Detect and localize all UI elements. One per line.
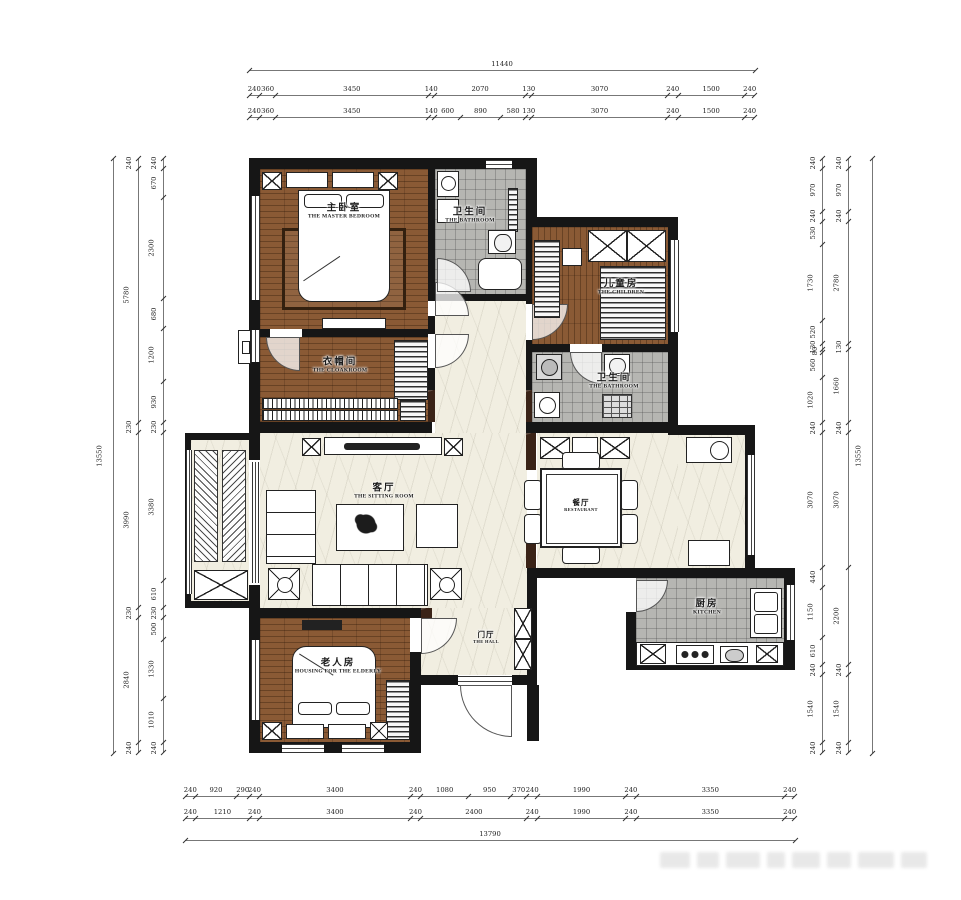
dim-value: 2200 <box>833 607 840 624</box>
plant-rack <box>222 450 246 562</box>
dim-segment: 230 <box>128 422 139 432</box>
dim-segment: 1330 <box>153 640 164 698</box>
wardrobe <box>400 400 426 421</box>
dim-value: 1210 <box>214 809 231 816</box>
dim-segment: 13550 <box>103 158 114 753</box>
wall <box>602 344 668 352</box>
armchair <box>266 490 316 564</box>
dim-segment: 2840 <box>128 618 139 743</box>
window <box>486 160 512 169</box>
dim-value: 500 <box>151 622 158 635</box>
dim-value: 560 <box>810 359 817 372</box>
wardrobe <box>386 680 410 740</box>
dim-segment: 3350 <box>636 808 784 819</box>
dining-chair <box>620 480 638 510</box>
dim-segment: 3450 <box>276 85 429 96</box>
towel-rack <box>508 188 518 232</box>
dim-value: 240 <box>743 86 756 93</box>
dim-value: 3450 <box>343 86 360 93</box>
label-elderly-room: 老人房 HOUSING FOR THE ELDERLY <box>295 658 381 675</box>
kitchen-cabinet <box>640 644 666 664</box>
dim-value: 1150 <box>807 604 814 621</box>
label-en: RESTAURANT <box>564 507 598 512</box>
lamp-icon <box>277 577 293 593</box>
window <box>342 744 384 753</box>
dim-right-total: 13550 <box>862 158 873 753</box>
dim-value: 13550 <box>855 445 862 467</box>
dim-value: 1330 <box>148 660 155 677</box>
dim-value: 240 <box>810 741 817 754</box>
entry-door-arc <box>460 685 512 737</box>
headboard-panel <box>286 172 328 188</box>
dim-value: 370 <box>512 787 525 794</box>
sink-basin <box>754 614 778 634</box>
dim-segment: 1210 <box>196 808 250 819</box>
dim-segment: 240 <box>128 742 139 753</box>
dim-value: 1080 <box>436 787 453 794</box>
dresser <box>322 318 386 329</box>
wall <box>527 685 539 741</box>
label-en: KITCHEN <box>693 610 721 617</box>
pillow <box>298 702 332 715</box>
dim-value: 2780 <box>833 274 840 291</box>
dim-right-mid: 2409702402780130166024030702200240154024… <box>838 158 849 753</box>
dim-value: 3070 <box>807 492 814 509</box>
dim-value: 3070 <box>591 86 608 93</box>
dim-value: 2070 <box>471 86 488 93</box>
dim-segment: 3400 <box>260 808 410 819</box>
label-zh: 卫生间 <box>445 207 495 217</box>
dim-segment: 3070 <box>812 433 823 568</box>
shower-mat <box>602 394 632 418</box>
dim-value: 13790 <box>479 831 501 838</box>
wall <box>185 433 249 440</box>
dim-segment: 13790 <box>185 830 795 841</box>
dining-chair <box>562 546 600 564</box>
dim-segment: 3350 <box>636 786 784 797</box>
dim-segment: 680 <box>153 299 164 329</box>
dim-segment: 2070 <box>434 85 526 96</box>
wall <box>249 608 421 618</box>
headboard-panel <box>332 172 374 188</box>
wall <box>185 601 249 608</box>
kitchen-cabinet <box>756 645 778 663</box>
label-hall: 门厅 THE HALL <box>473 631 499 645</box>
dim-value: 5780 <box>123 287 130 304</box>
dim-value: 240 <box>151 741 158 754</box>
shoe-cabinet <box>514 639 532 670</box>
niche-inner <box>242 341 250 354</box>
label-bathroom-2: 卫生间 THE BATHROOM <box>589 373 639 390</box>
label-master-bedroom: 主卧室 THE MASTER BEDROOM <box>308 203 380 220</box>
dim-top-row-a: 2403603450140207013030702401500240 <box>249 85 755 96</box>
pillar <box>526 390 532 422</box>
wall <box>668 425 755 435</box>
dim-segment: 970 <box>838 169 849 212</box>
label-en: THE BATHROOM <box>589 384 639 391</box>
dim-top-total: 11440 <box>249 60 755 71</box>
dim-segment: 240 <box>784 786 795 797</box>
dim-value: 240 <box>836 741 843 754</box>
dim-value: 3450 <box>343 108 360 115</box>
decor-box <box>262 722 282 740</box>
children-bed <box>600 266 666 340</box>
dim-segment: 240 <box>153 742 164 753</box>
decor-box <box>262 172 282 190</box>
wall <box>626 612 636 670</box>
wall <box>410 652 421 753</box>
sideboard <box>600 437 630 459</box>
label-kitchen: 厨房 KITCHEN <box>693 599 721 616</box>
dim-segment: 240 <box>667 85 678 96</box>
dim-left-total: 13550 <box>103 158 114 753</box>
headboard-panel <box>286 724 324 739</box>
label-dining-room: 餐厅 RESTAURANT <box>564 499 598 513</box>
shoe-cabinet <box>514 608 532 639</box>
side-table <box>444 438 463 456</box>
dim-segment: 360 <box>260 85 276 96</box>
dim-segment: 1540 <box>838 675 849 743</box>
wall <box>428 316 435 334</box>
dim-segment: 240 <box>744 85 755 96</box>
dim-segment: 3400 <box>260 786 410 797</box>
pillar <box>421 608 432 618</box>
pillar <box>428 390 435 422</box>
dim-segment: 950 <box>469 786 511 797</box>
dim-value: 13550 <box>96 445 103 467</box>
dim-value: 240 <box>126 741 133 754</box>
dim-segment: 240 <box>128 158 139 169</box>
dim-segment: 890 <box>461 107 500 118</box>
dim-value: 3400 <box>326 787 343 794</box>
dim-value: 3070 <box>591 108 608 115</box>
basin-icon <box>725 649 744 662</box>
dim-value: 610 <box>151 588 158 601</box>
dim-segment: 370 <box>511 786 527 797</box>
label-en: THE MASTER BEDROOM <box>308 214 380 221</box>
decor-box <box>378 172 398 190</box>
dim-segment: 1540 <box>812 675 823 743</box>
label-zh: 卫生间 <box>589 373 639 383</box>
dim-segment: 930 <box>153 382 164 423</box>
dim-value: 240 <box>783 809 796 816</box>
dim-value: 3350 <box>702 809 719 816</box>
window <box>282 744 324 753</box>
label-en: THE SITTING ROOM <box>354 494 414 501</box>
dim-segment: 970 <box>812 169 823 212</box>
dim-segment: 530 <box>812 222 823 245</box>
pillow <box>336 702 370 715</box>
dim-segment: 2200 <box>838 568 849 665</box>
dim-value: 520 <box>810 326 817 339</box>
dim-value: 360 <box>261 108 274 115</box>
dim-value: 680 <box>151 307 158 320</box>
sink-basin <box>754 592 778 612</box>
floor-plan: 主卧室 THE MASTER BEDROOM 卫生间 THE BATHROOM … <box>0 0 961 900</box>
dim-segment: 920 <box>196 786 237 797</box>
window <box>252 462 259 583</box>
label-zh: 儿童房 <box>598 279 644 289</box>
dim-value: 2300 <box>148 240 155 257</box>
dim-segment: 600 <box>434 107 461 118</box>
bathtub <box>478 258 522 290</box>
wall <box>302 329 428 337</box>
dim-value: 1540 <box>807 700 814 717</box>
dim-value: 950 <box>483 787 496 794</box>
storage-cabinet <box>194 570 248 600</box>
dim-segment: 1150 <box>812 587 823 638</box>
dim-value: 1540 <box>833 700 840 717</box>
dim-value: 1500 <box>703 86 720 93</box>
dim-segment: 560 <box>812 353 823 378</box>
dim-value: 530 <box>810 227 817 240</box>
dim-segment: 1010 <box>153 698 164 742</box>
corridor-floor <box>435 301 526 433</box>
dim-segment: 240 <box>153 158 164 169</box>
wardrobe-rail <box>262 410 398 421</box>
dim-segment: 1990 <box>538 786 626 797</box>
side-table <box>302 438 321 456</box>
dim-segment: 240 <box>626 808 637 819</box>
dim-bottom-row-a: 2409202902403400240108095037024019902403… <box>185 786 795 797</box>
tv-icon <box>344 443 420 450</box>
wall <box>636 568 784 578</box>
dim-segment: 1500 <box>678 107 744 118</box>
dim-segment: 1660 <box>838 349 849 422</box>
window <box>251 330 260 362</box>
dim-value: 1200 <box>148 347 155 364</box>
wall <box>527 422 678 433</box>
dim-value: 670 <box>151 177 158 190</box>
dim-segment: 240 <box>667 107 678 118</box>
dim-value: 580 <box>507 108 520 115</box>
wardrobe-rail <box>262 398 398 409</box>
headboard-panel <box>328 724 366 739</box>
washer-drum-icon <box>541 359 558 376</box>
plant-icon <box>352 510 380 538</box>
label-zh: 厨房 <box>693 599 721 609</box>
wardrobe <box>394 340 428 400</box>
dim-segment: 2780 <box>838 222 849 344</box>
wall <box>249 742 415 753</box>
dim-segment: 240 <box>626 786 637 797</box>
wall <box>428 169 435 282</box>
label-en: THE CLOAKROOM <box>313 368 368 375</box>
window <box>786 585 795 640</box>
label-bathroom-1: 卫生间 THE BATHROOM <box>445 207 495 224</box>
dim-segment: 440 <box>812 568 823 587</box>
basin-icon <box>441 176 456 191</box>
dim-value: 3380 <box>148 498 155 515</box>
window <box>670 240 679 332</box>
window <box>251 640 260 720</box>
dim-segment: 240 <box>527 808 538 819</box>
dim-segment: 3070 <box>532 107 668 118</box>
dim-bottom-total: 13790 <box>185 830 795 841</box>
dim-value: 920 <box>209 787 222 794</box>
dim-value: 2840 <box>123 671 130 688</box>
dim-segment: 3380 <box>153 432 164 580</box>
dim-segment: 240 <box>744 107 755 118</box>
plant-rack <box>194 450 218 562</box>
dim-segment: 3070 <box>838 433 849 568</box>
dim-segment: 1200 <box>153 329 164 382</box>
dim-value: 2400 <box>465 809 482 816</box>
window <box>186 450 192 594</box>
dim-segment: 2400 <box>421 808 527 819</box>
dim-bottom-row-b: 24012102403400240240024019902403350240 <box>185 808 795 819</box>
dim-segment: 13550 <box>862 158 873 753</box>
dim-segment: 610 <box>812 638 823 665</box>
dim-value: 3350 <box>702 787 719 794</box>
dim-segment: 3450 <box>276 107 429 118</box>
label-en: THE BATHROOM <box>445 218 495 225</box>
dim-value: 11440 <box>491 61 513 68</box>
dim-value: 600 <box>441 108 454 115</box>
dim-value: 610 <box>810 644 817 657</box>
label-zh: 主卧室 <box>308 203 380 213</box>
dim-value: 1990 <box>573 809 590 816</box>
dim-value: 970 <box>836 183 843 196</box>
accent-chair <box>416 504 458 548</box>
wall <box>421 675 458 685</box>
dim-segment: 500 <box>153 618 164 640</box>
wall <box>526 169 532 304</box>
desk <box>302 620 342 630</box>
wall <box>249 433 260 460</box>
dim-value: 890 <box>474 108 487 115</box>
decor-box <box>370 722 388 740</box>
label-cloakroom: 衣帽间 THE CLOAKROOM <box>313 357 368 374</box>
dim-value: 440 <box>810 571 817 584</box>
wall <box>260 329 270 337</box>
label-zh: 老人房 <box>295 658 381 668</box>
dim-segment: 3990 <box>128 432 139 607</box>
dim-segment: 2300 <box>153 198 164 299</box>
label-en: THE CHILDREN <box>598 290 644 297</box>
dim-segment: 240 <box>812 158 823 169</box>
toilet-bowl-icon <box>494 234 512 252</box>
dim-value: 1010 <box>148 712 155 729</box>
closet <box>588 230 627 262</box>
dim-value: 930 <box>151 395 158 408</box>
label-children-room: 儿童房 THE CHILDREN <box>598 279 644 296</box>
basin-icon <box>539 397 556 414</box>
dim-segment: 670 <box>153 169 164 198</box>
dim-segment: 240 <box>527 786 538 797</box>
dim-value: 970 <box>810 183 817 196</box>
label-zh: 衣帽间 <box>313 357 368 367</box>
dim-segment: 240 <box>812 742 823 753</box>
dim-segment: 360 <box>260 107 276 118</box>
watermark <box>660 847 952 873</box>
dim-segment: 240 <box>838 742 849 753</box>
bay-cabinet <box>688 540 730 566</box>
window <box>251 196 260 300</box>
dim-segment: 3070 <box>532 85 668 96</box>
lamp-icon <box>439 577 455 593</box>
sink-icon <box>710 441 729 460</box>
dim-segment: 11440 <box>249 60 755 71</box>
wall <box>249 422 432 433</box>
dining-chair <box>620 514 638 544</box>
dim-segment: 1730 <box>812 245 823 321</box>
dim-top-row-b: 240360345014060089058013030702401500240 <box>249 107 755 118</box>
stove-icon <box>676 645 714 664</box>
dim-value: 3990 <box>123 511 130 528</box>
dim-segment: 1080 <box>421 786 469 797</box>
dim-segment: 5780 <box>128 169 139 423</box>
dim-segment: 240 <box>838 158 849 169</box>
wardrobe <box>534 240 560 318</box>
dim-value: 1730 <box>807 274 814 291</box>
dim-value: 3400 <box>326 809 343 816</box>
dim-value: 1500 <box>703 108 720 115</box>
label-en: HOUSING FOR THE ELDERLY <box>295 669 381 676</box>
dim-segment: 1990 <box>538 808 626 819</box>
window <box>747 455 755 555</box>
dim-segment: 1500 <box>678 85 744 96</box>
dim-segment: 240 <box>784 808 795 819</box>
label-zh: 客厅 <box>354 483 414 493</box>
dim-segment: 1020 <box>812 378 823 423</box>
dim-segment: 610 <box>153 581 164 608</box>
dim-value: 3070 <box>833 492 840 509</box>
dim-left-inner: 2406702300680120093023033806102305001330… <box>153 158 164 753</box>
dim-value: 1020 <box>807 391 814 408</box>
closet <box>627 230 666 262</box>
dim-value: 240 <box>783 787 796 794</box>
dim-value: 1660 <box>833 377 840 394</box>
wall <box>532 344 570 352</box>
dim-value: 360 <box>261 86 274 93</box>
dim-value: 1990 <box>573 787 590 794</box>
dim-right-inner: 2409702405301730520130805601020240307044… <box>812 158 823 753</box>
pillar <box>526 433 536 470</box>
sofa <box>312 564 428 606</box>
wall <box>537 568 636 578</box>
dim-value: 240 <box>743 108 756 115</box>
label-en: THE HALL <box>473 639 499 644</box>
dim-segment: 230 <box>153 422 164 432</box>
label-sitting-room: 客厅 THE SITTING ROOM <box>354 483 414 500</box>
dim-left-mid: 240578023039902302840240 <box>128 158 139 753</box>
wall <box>527 217 678 227</box>
desk <box>562 248 582 266</box>
